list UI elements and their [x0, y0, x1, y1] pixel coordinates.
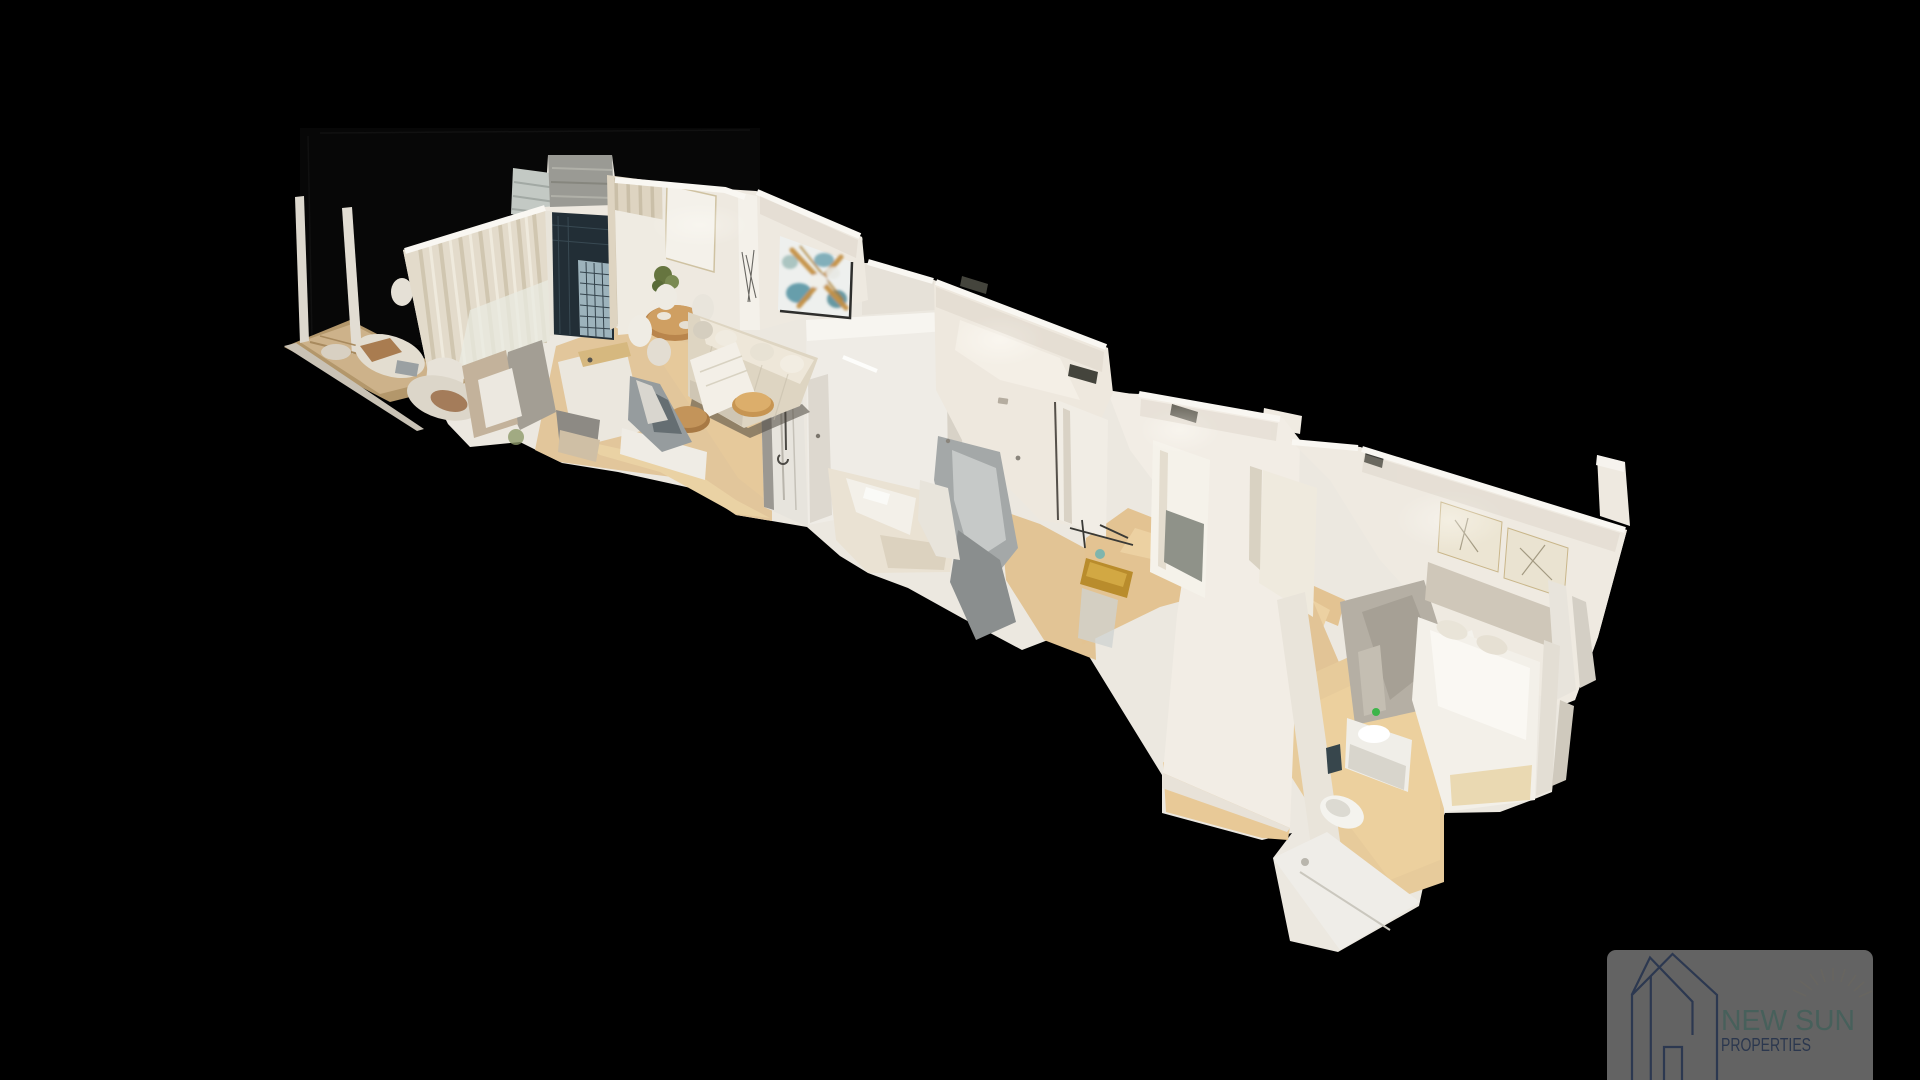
svg-text:NEW SUN: NEW SUN: [1721, 1005, 1855, 1037]
svg-text:PROPERTIES: PROPERTIES: [1721, 1035, 1811, 1055]
